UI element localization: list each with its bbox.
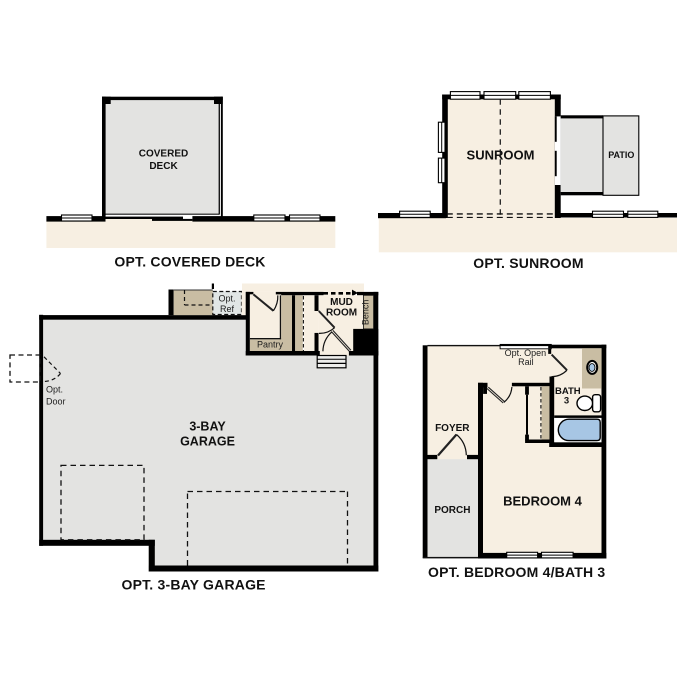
- svg-text:Bench: Bench: [361, 300, 371, 326]
- svg-text:Door: Door: [46, 397, 66, 407]
- svg-text:MUD: MUD: [330, 297, 353, 308]
- svg-text:Opt.: Opt.: [46, 385, 63, 395]
- svg-text:PORCH: PORCH: [434, 505, 470, 516]
- svg-text:FOYER: FOYER: [435, 423, 470, 434]
- svg-text:Rail: Rail: [518, 357, 534, 367]
- svg-text:3: 3: [564, 396, 569, 407]
- svg-text:OPT. BEDROOM 4/BATH 3: OPT. BEDROOM 4/BATH 3: [428, 564, 605, 580]
- svg-text:OPT. COVERED DECK: OPT. COVERED DECK: [114, 254, 265, 270]
- svg-text:Ref: Ref: [220, 304, 235, 314]
- svg-text:Opt.: Opt.: [218, 294, 235, 304]
- svg-text:3-BAY: 3-BAY: [189, 419, 226, 433]
- svg-text:ROOM: ROOM: [326, 308, 357, 319]
- svg-text:PATIO: PATIO: [608, 150, 634, 160]
- svg-text:BEDROOM 4: BEDROOM 4: [503, 494, 583, 509]
- svg-text:SUNROOM: SUNROOM: [467, 147, 535, 162]
- svg-text:OPT. 3-BAY GARAGE: OPT. 3-BAY GARAGE: [121, 576, 265, 592]
- svg-text:GARAGE: GARAGE: [180, 435, 235, 449]
- svg-text:COVERED: COVERED: [139, 148, 188, 159]
- svg-text:DECK: DECK: [149, 161, 178, 172]
- svg-text:Pantry: Pantry: [257, 340, 284, 350]
- svg-text:OPT. SUNROOM: OPT. SUNROOM: [473, 255, 584, 271]
